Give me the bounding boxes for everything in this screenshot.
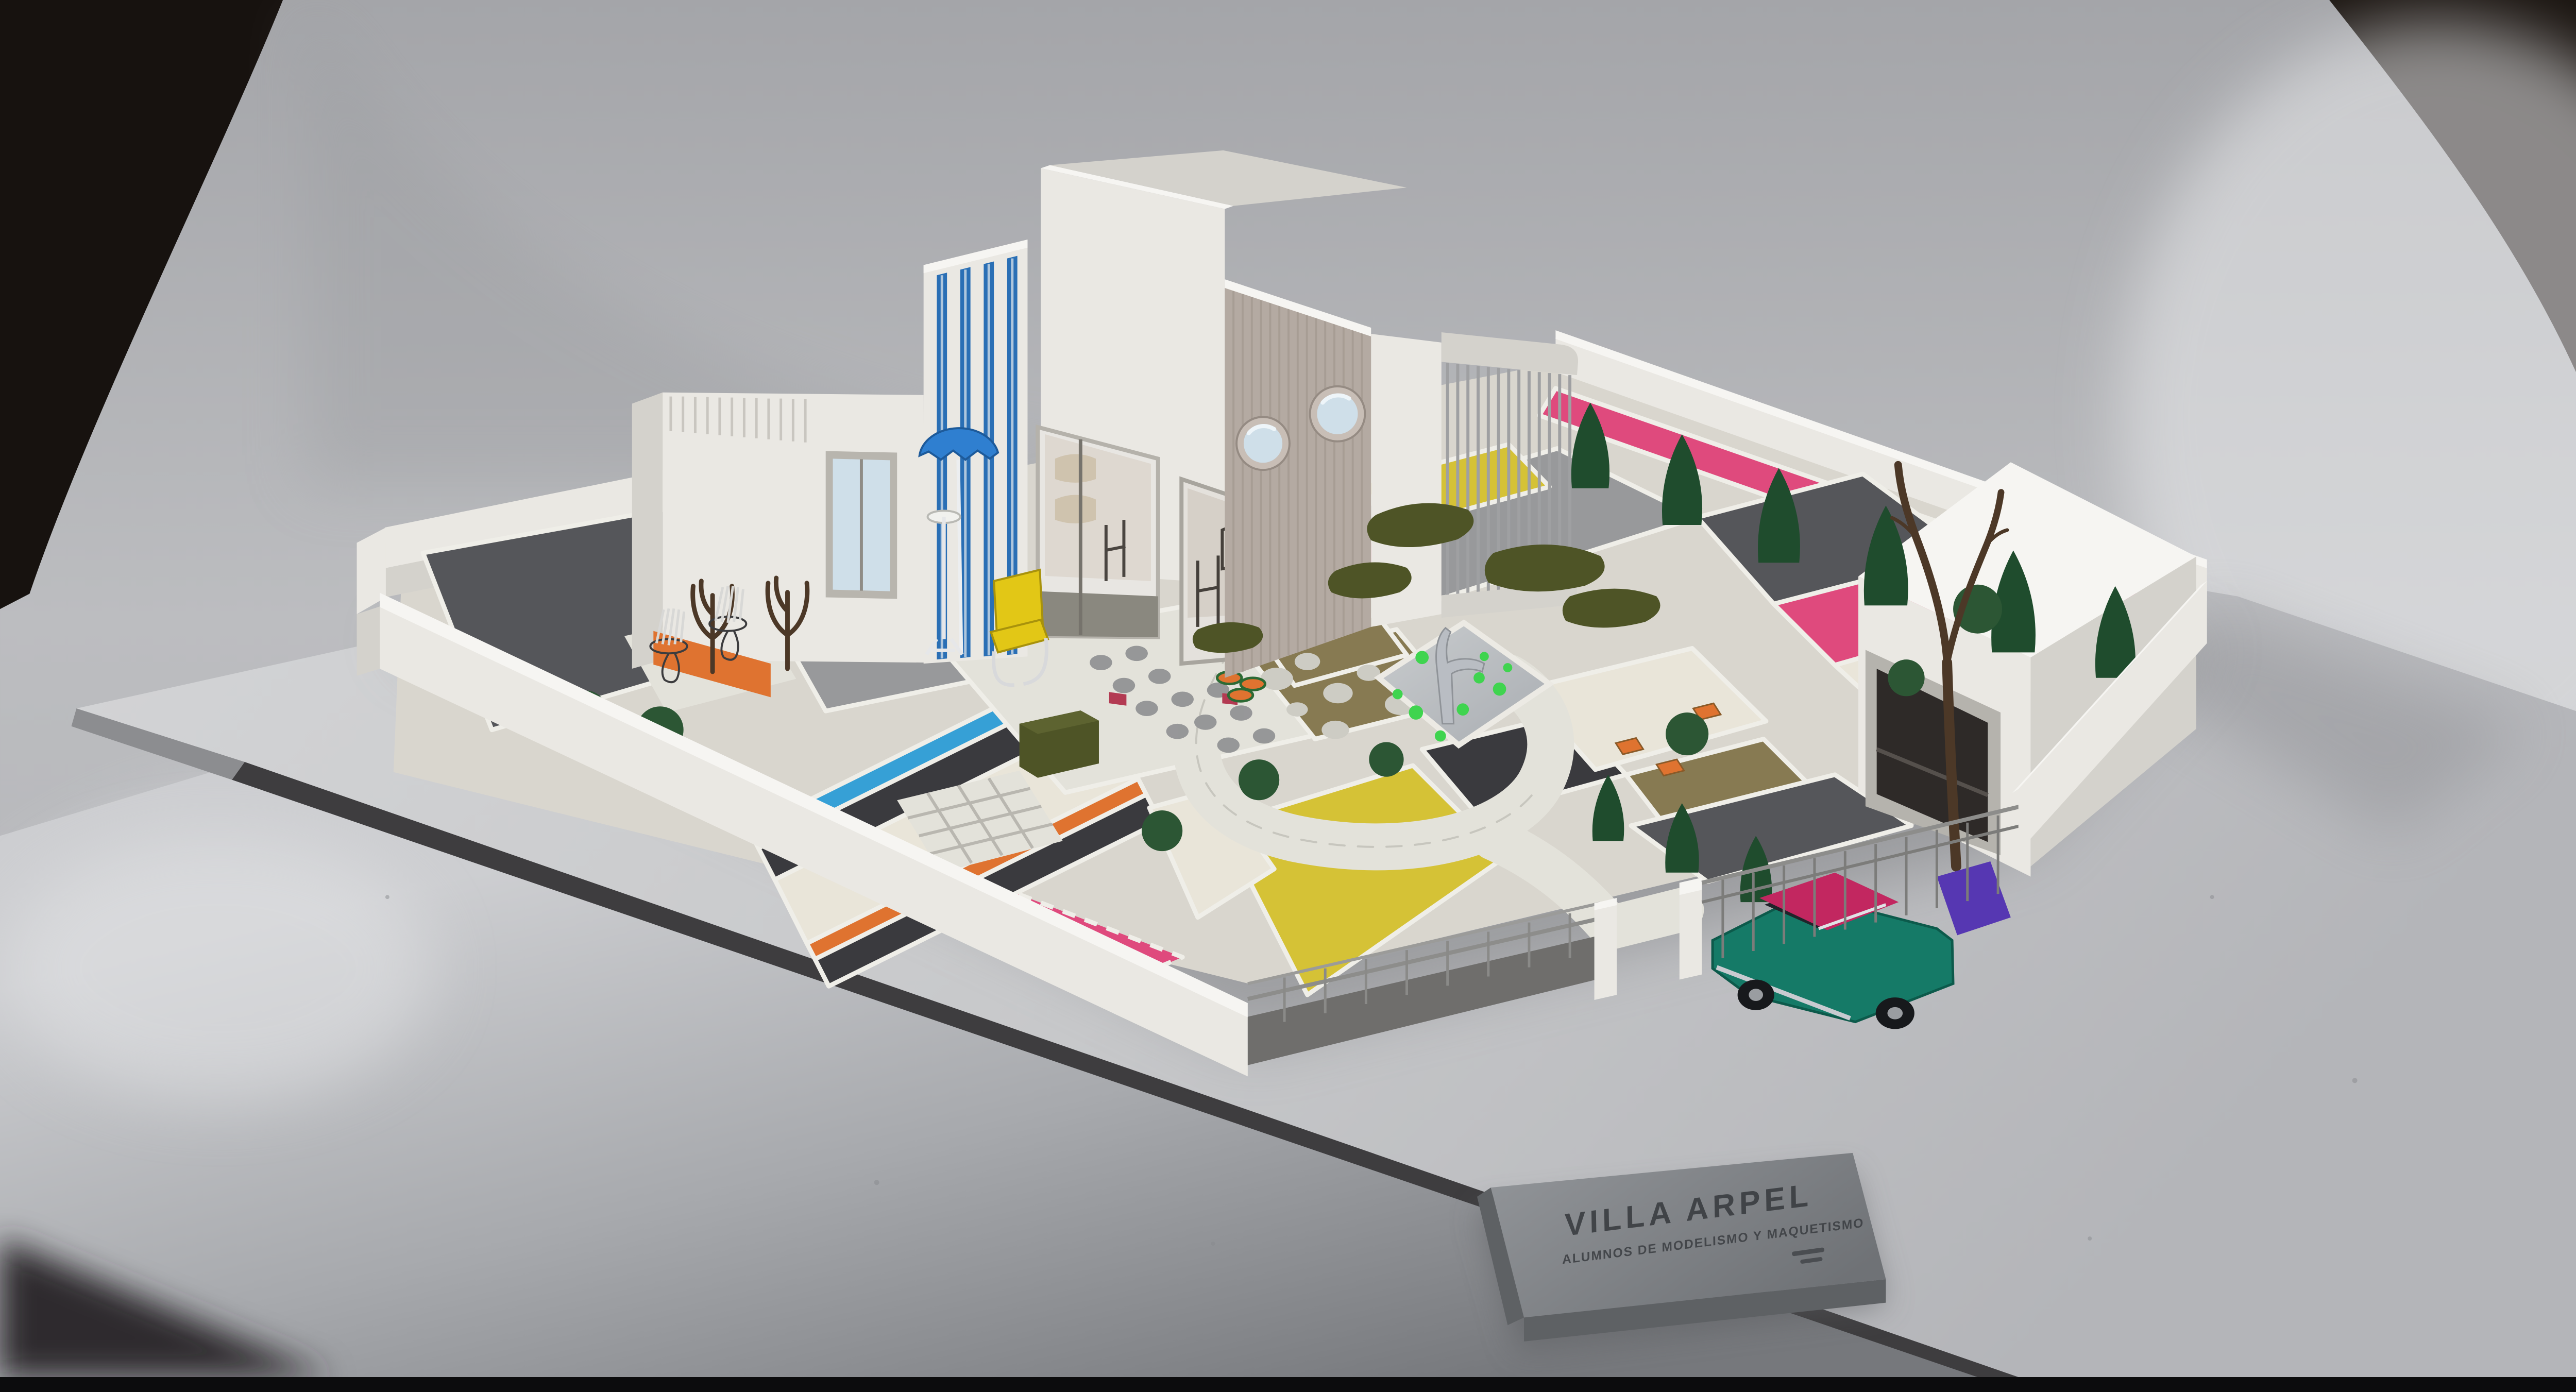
garden-shed bbox=[632, 393, 925, 698]
porthole-facade bbox=[1225, 279, 1371, 678]
scene-canvas: VILLA ARPEL ALUMNOS DE MODELISMO Y MAQUE… bbox=[0, 0, 2576, 1377]
photo-of-architecture-model: VILLA ARPEL ALUMNOS DE MODELISMO Y MAQUE… bbox=[0, 0, 2576, 1377]
left-side-wall bbox=[357, 606, 380, 676]
porthole-window bbox=[1310, 386, 1365, 442]
porthole-window bbox=[1236, 417, 1290, 470]
